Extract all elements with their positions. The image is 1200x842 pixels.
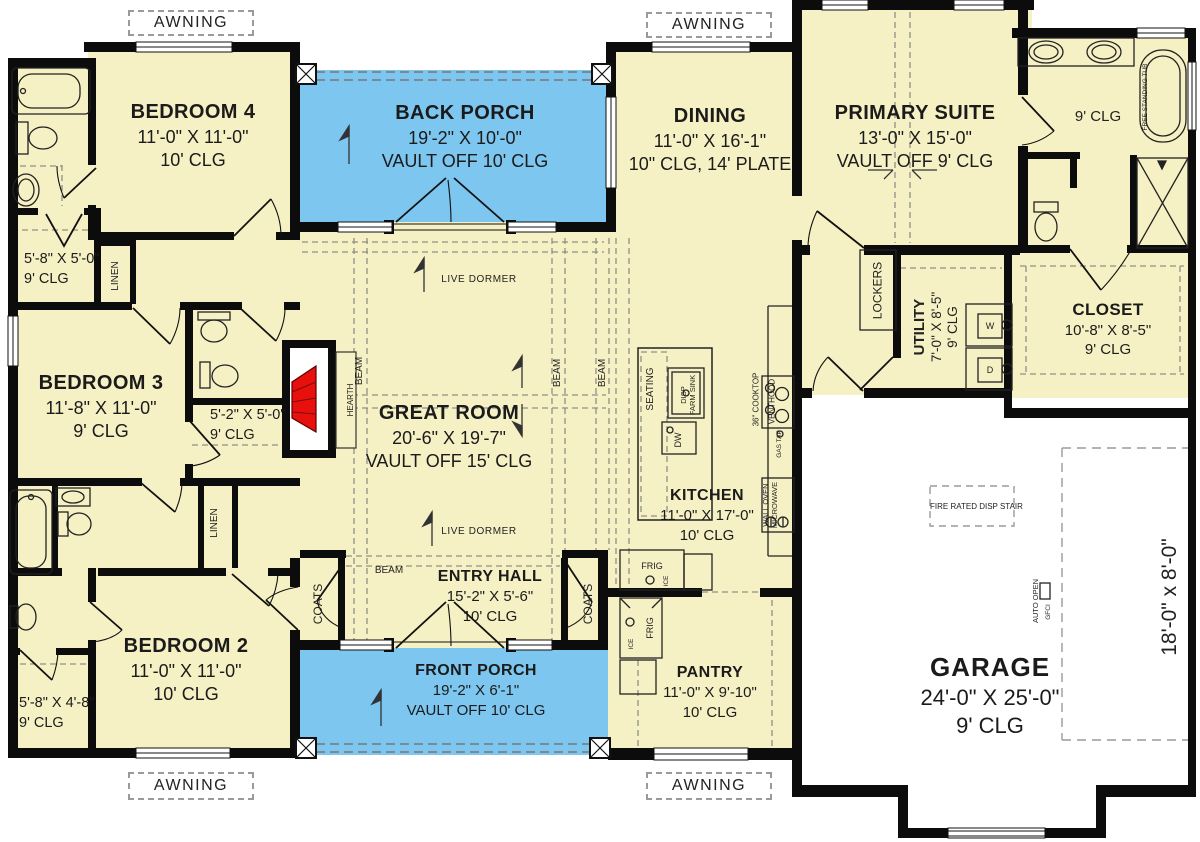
room-dims: 19'-2" X 6'-1" xyxy=(386,681,566,700)
room-ceiling: 9' CLG xyxy=(945,306,961,348)
room-name: CLOSET xyxy=(1033,299,1183,321)
room-dims: 11'-0" X 11'-0" xyxy=(103,126,283,149)
awning-text: AWNING xyxy=(154,777,228,795)
dishwasher-label: DW xyxy=(673,430,683,450)
gas-tap-text: GAS TAP xyxy=(776,430,784,458)
seating-text: SEATING xyxy=(645,367,657,410)
live-dormer-label: LIVE DORMER xyxy=(437,526,521,537)
farm-sink-text: FARM SINK xyxy=(688,375,697,415)
tub-text: FREE STANDING TUB xyxy=(1142,64,1150,131)
dryer-label: D xyxy=(980,365,1000,375)
room-label-kitchen: KITCHEN 11'-0" X 17'-0" 10' CLG xyxy=(637,486,777,545)
room-dims: 11'-8" X 11'-0" xyxy=(11,397,191,420)
awning-label: AWNING xyxy=(128,10,254,36)
room-ceiling: VAULT OFF 10' CLG xyxy=(386,701,566,720)
closet-dims: 5'-8" X 5'-0" xyxy=(24,249,99,269)
room-label-entry-hall: ENTRY HALL 15'-2" X 5'-6" 10' CLG xyxy=(415,567,565,626)
room-dims: 11'-0" X 17'-0" xyxy=(637,506,777,525)
closet-label-bedroom4: 5'-8" X 5'-0" 9' CLG xyxy=(24,249,99,289)
live-dormer-text: LIVE DORMER xyxy=(441,274,517,285)
ice-label: ICE xyxy=(663,572,671,590)
awning-label: AWNING xyxy=(128,772,254,800)
washer-label: W xyxy=(980,321,1000,331)
room-dims: 13'-0" X 15'-0" xyxy=(802,127,1028,150)
fire-rated-stair-text: FIRE RATED DISP STAIR xyxy=(930,502,1023,511)
room-name: FRONT PORCH xyxy=(386,661,566,681)
room-dims: 15'-2" X 5'-6" xyxy=(415,587,565,606)
fire-rated-stair-label: FIRE RATED DISP STAIR xyxy=(930,502,1014,511)
closet-ceiling: 9' CLG xyxy=(19,713,94,733)
fireplace-icon xyxy=(282,340,356,458)
farm-sink-label: DISP FARM SINK xyxy=(680,370,696,420)
lockers-text: LOCKERS xyxy=(871,262,885,319)
beam-label: BEAM xyxy=(369,565,409,576)
dw-text: DW xyxy=(673,433,684,448)
coats-text: COATS xyxy=(311,584,325,624)
venthood-label: VENTHOOD xyxy=(768,375,777,429)
floor-plan: AWNING AWNING AWNING AWNING BEDROOM 4 11… xyxy=(0,0,1200,842)
closet-label-bedroom3: 5'-2" X 5'-0" 9' CLG xyxy=(210,405,285,445)
awning-text: AWNING xyxy=(672,777,746,795)
primary-bath-ceiling: 9' CLG xyxy=(1062,108,1134,125)
wall-oven-label: WALL OVEN MICROWAVE xyxy=(761,477,779,533)
dryer-text: D xyxy=(987,365,994,375)
room-ceiling: VAULT OFF 15' CLG xyxy=(349,450,549,473)
room-name: BEDROOM 4 xyxy=(103,100,283,126)
room-ceiling: 10' CLG xyxy=(96,683,276,706)
room-label-closet: CLOSET 10'-8" X 8'-5" 9' CLG xyxy=(1033,299,1183,359)
awning-label: AWNING xyxy=(646,12,772,38)
room-name: PANTRY xyxy=(640,663,780,683)
room-label-great-room: GREAT ROOM 20'-6" X 19'-7" VAULT OFF 15'… xyxy=(349,401,549,473)
ice-text: ICE xyxy=(628,639,636,650)
linen-label: LINEN xyxy=(110,254,122,298)
awning-text: AWNING xyxy=(672,16,746,34)
room-name: UTILITY xyxy=(911,299,929,356)
wall-oven-text: WALL OVEN xyxy=(761,483,770,526)
room-label-utility: UTILITY 7'-0" X 8'-5" 9' CLG xyxy=(911,277,961,377)
room-dims: 7'-0" X 8'-5" xyxy=(929,292,945,362)
room-name: ENTRY HALL xyxy=(415,567,565,587)
room-label-dining: DINING 11'-0" X 16'-1" 10" CLG, 14' PLAT… xyxy=(622,104,798,176)
disp-text: DISP xyxy=(679,386,688,404)
live-dormer-label: LIVE DORMER xyxy=(437,274,521,285)
room-dims: 20'-6" X 19'-7" xyxy=(349,427,549,450)
gas-tap-label: GAS TAP xyxy=(776,427,784,461)
linen-text: LINEN xyxy=(209,508,221,537)
room-label-garage: GARAGE 24'-0" X 25'-0" 9' CLG xyxy=(878,651,1102,741)
room-ceiling: 9' CLG xyxy=(1033,340,1183,359)
hearth-text: HEARTH xyxy=(346,384,356,417)
live-dormer-text: LIVE DORMER xyxy=(441,526,517,537)
room-ceiling: 10' CLG xyxy=(637,526,777,545)
awning-text: AWNING xyxy=(154,14,228,32)
room-ceiling: 9' CLG xyxy=(878,712,1102,740)
garage-door-size-label: 18'-0" x 8'-0" xyxy=(1158,532,1182,662)
gfci-label: GFCI xyxy=(1045,600,1053,624)
closet-ceiling: 9' CLG xyxy=(210,425,285,445)
cooktop-text: 36" COOKTOP xyxy=(751,373,761,427)
room-ceiling: 10' CLG xyxy=(103,149,283,172)
room-label-primary-suite: PRIMARY SUITE 13'-0" X 15'-0" VAULT OFF … xyxy=(802,101,1028,173)
room-ceiling: 10' CLG xyxy=(415,607,565,626)
room-name: GARAGE xyxy=(878,651,1102,684)
room-label-bedroom2: BEDROOM 2 11'-0" X 11'-0" 10' CLG xyxy=(96,634,276,706)
room-label-bedroom4: BEDROOM 4 11'-0" X 11'-0" 10' CLG xyxy=(103,100,283,172)
room-label-pantry: PANTRY 11'-0" X 9'-10" 10' CLG xyxy=(640,663,780,722)
room-ceiling: VAULT OFF 9' CLG xyxy=(802,150,1028,173)
room-name: KITCHEN xyxy=(637,486,777,506)
room-dims: 11'-0" X 16'-1" xyxy=(622,130,798,153)
auto-open-label: AUTO OPEN xyxy=(1031,578,1039,624)
hearth-label: HEARTH xyxy=(346,377,356,423)
coats-text: COATS xyxy=(581,584,595,624)
room-label-back-porch: BACK PORCH 19'-2" X 10'-0" VAULT OFF 10'… xyxy=(355,101,575,173)
closet-dims: 5'-2" X 5'-0" xyxy=(210,405,285,425)
beam-label: BEAM xyxy=(597,353,609,393)
room-name: GREAT ROOM xyxy=(349,401,549,427)
ceiling-text: 9' CLG xyxy=(1075,108,1121,125)
room-label-bedroom3: BEDROOM 3 11'-8" X 11'-0" 9' CLG xyxy=(11,371,191,443)
coats-label: COATS xyxy=(581,577,595,631)
venthood-text: VENTHOOD xyxy=(767,379,777,424)
room-ceiling: VAULT OFF 10' CLG xyxy=(355,150,575,173)
room-dims: 24'-0" X 25'-0" xyxy=(878,684,1102,712)
room-dims: 11'-0" X 11'-0" xyxy=(96,660,276,683)
beam-text: BEAM xyxy=(552,359,564,387)
free-standing-tub-label: FREE STANDING TUB xyxy=(1142,60,1150,134)
room-name: DINING xyxy=(622,104,798,130)
closet-ceiling: 9' CLG xyxy=(24,269,99,289)
washer-text: W xyxy=(986,321,995,331)
linen-label: LINEN xyxy=(209,501,221,545)
lockers-label: LOCKERS xyxy=(872,261,885,321)
room-ceiling: 9' CLG xyxy=(11,420,191,443)
frig-text: FRIG xyxy=(641,561,663,571)
seating-label: SEATING xyxy=(645,362,657,416)
closet-label-bedroom2: 5'-8" X 4'-8" 9' CLG xyxy=(19,693,94,733)
ice-label: ICE xyxy=(628,635,636,653)
fridge-label: FRIG xyxy=(645,613,655,643)
garage-door-size-text: 18'-0" x 8'-0" xyxy=(1157,538,1182,655)
room-dims: 11'-0" X 9'-10" xyxy=(640,683,780,702)
closet-dims: 5'-8" X 4'-8" xyxy=(19,693,94,713)
room-ceiling: 10" CLG, 14' PLATE xyxy=(622,153,798,176)
room-name: BACK PORCH xyxy=(355,101,575,127)
microwave-text: MICROWAVE xyxy=(770,482,779,528)
room-dims: 10'-8" X 8'-5" xyxy=(1033,321,1183,340)
room-dims: 19'-2" X 10'-0" xyxy=(355,127,575,150)
coats-label: COATS xyxy=(311,577,325,631)
cooktop-label: 36" COOKTOP xyxy=(752,368,761,432)
frig-text: FRIG xyxy=(645,617,656,639)
linen-text: LINEN xyxy=(110,261,122,290)
gfci-text: GFCI xyxy=(1045,604,1053,620)
fridge-label: FRIG xyxy=(634,561,670,571)
room-name: BEDROOM 2 xyxy=(96,634,276,660)
awning-label: AWNING xyxy=(646,772,772,800)
ice-text: ICE xyxy=(663,576,671,587)
room-name: BEDROOM 3 xyxy=(11,371,191,397)
room-ceiling: 10' CLG xyxy=(640,703,780,722)
beam-text: BEAM xyxy=(375,565,403,576)
beam-text: BEAM xyxy=(597,359,609,387)
beam-label: BEAM xyxy=(552,353,564,393)
auto-open-text: AUTO OPEN xyxy=(1031,579,1040,623)
room-name: PRIMARY SUITE xyxy=(802,101,1028,127)
room-label-front-porch: FRONT PORCH 19'-2" X 6'-1" VAULT OFF 10'… xyxy=(386,661,566,720)
